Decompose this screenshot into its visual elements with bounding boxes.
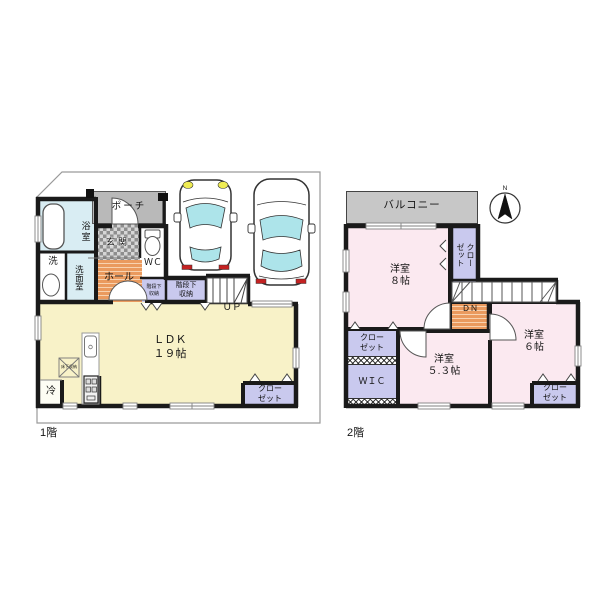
compass-icon (490, 193, 520, 223)
caption-floor1: 1階 (40, 427, 80, 441)
room-closet-side (452, 226, 478, 282)
room-dn-landing (452, 303, 488, 330)
room-stair-storage-large (166, 278, 206, 302)
room-entrance (96, 224, 140, 260)
room-fridge-nook (40, 380, 62, 406)
label-north: N (500, 185, 510, 193)
room-washroom (66, 253, 96, 301)
car-top-view-2 (248, 179, 315, 285)
floorplan-canvas: 浴室 洗 洗面室 ポーチ 玄関 ＷＣ ホール 階段下 収納 階段下 収納 ＵＰ … (0, 0, 600, 600)
room-closet-br-2f (532, 381, 578, 406)
room-closet-left-2f (346, 329, 398, 356)
car-top-view-1 (174, 180, 237, 270)
room-stairs-2f (452, 282, 556, 303)
room-bedroom8 (348, 226, 452, 329)
room-laundry (40, 253, 66, 301)
room-wic (346, 365, 398, 398)
room-balcony (346, 191, 478, 224)
wall-hatch-bottom (346, 398, 398, 406)
caption-floor2: 2階 (347, 427, 387, 441)
stairs-1f (207, 278, 247, 303)
room-porch (92, 191, 166, 224)
room-wc (140, 224, 166, 278)
room-closet-1f (243, 381, 296, 406)
room-bath (40, 199, 96, 253)
wall-hatch-top (346, 356, 398, 365)
room-bedroom53 (398, 329, 490, 406)
room-stair-storage-small (142, 278, 166, 302)
room-hall (96, 260, 142, 302)
